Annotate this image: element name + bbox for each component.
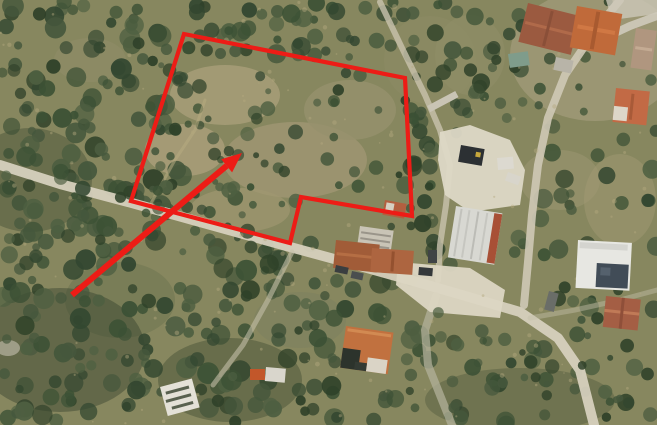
car-on-road-3 bbox=[418, 267, 433, 276]
white-flat-building bbox=[575, 240, 631, 291]
orange-digger bbox=[250, 369, 265, 380]
terracotta-house bbox=[603, 296, 641, 330]
farm-roof-2 bbox=[370, 248, 414, 275]
teal-shed bbox=[508, 51, 530, 68]
bottom-house bbox=[340, 326, 393, 374]
white-truck-bottomleft bbox=[265, 367, 286, 383]
white-machine-yard bbox=[497, 157, 514, 170]
aerial-photo bbox=[0, 0, 657, 425]
warehouse bbox=[448, 206, 503, 265]
village-house-4 bbox=[612, 88, 649, 125]
car-on-road-4 bbox=[428, 250, 437, 263]
village-roof-2 bbox=[570, 6, 623, 55]
satellite-scene bbox=[0, 0, 657, 425]
